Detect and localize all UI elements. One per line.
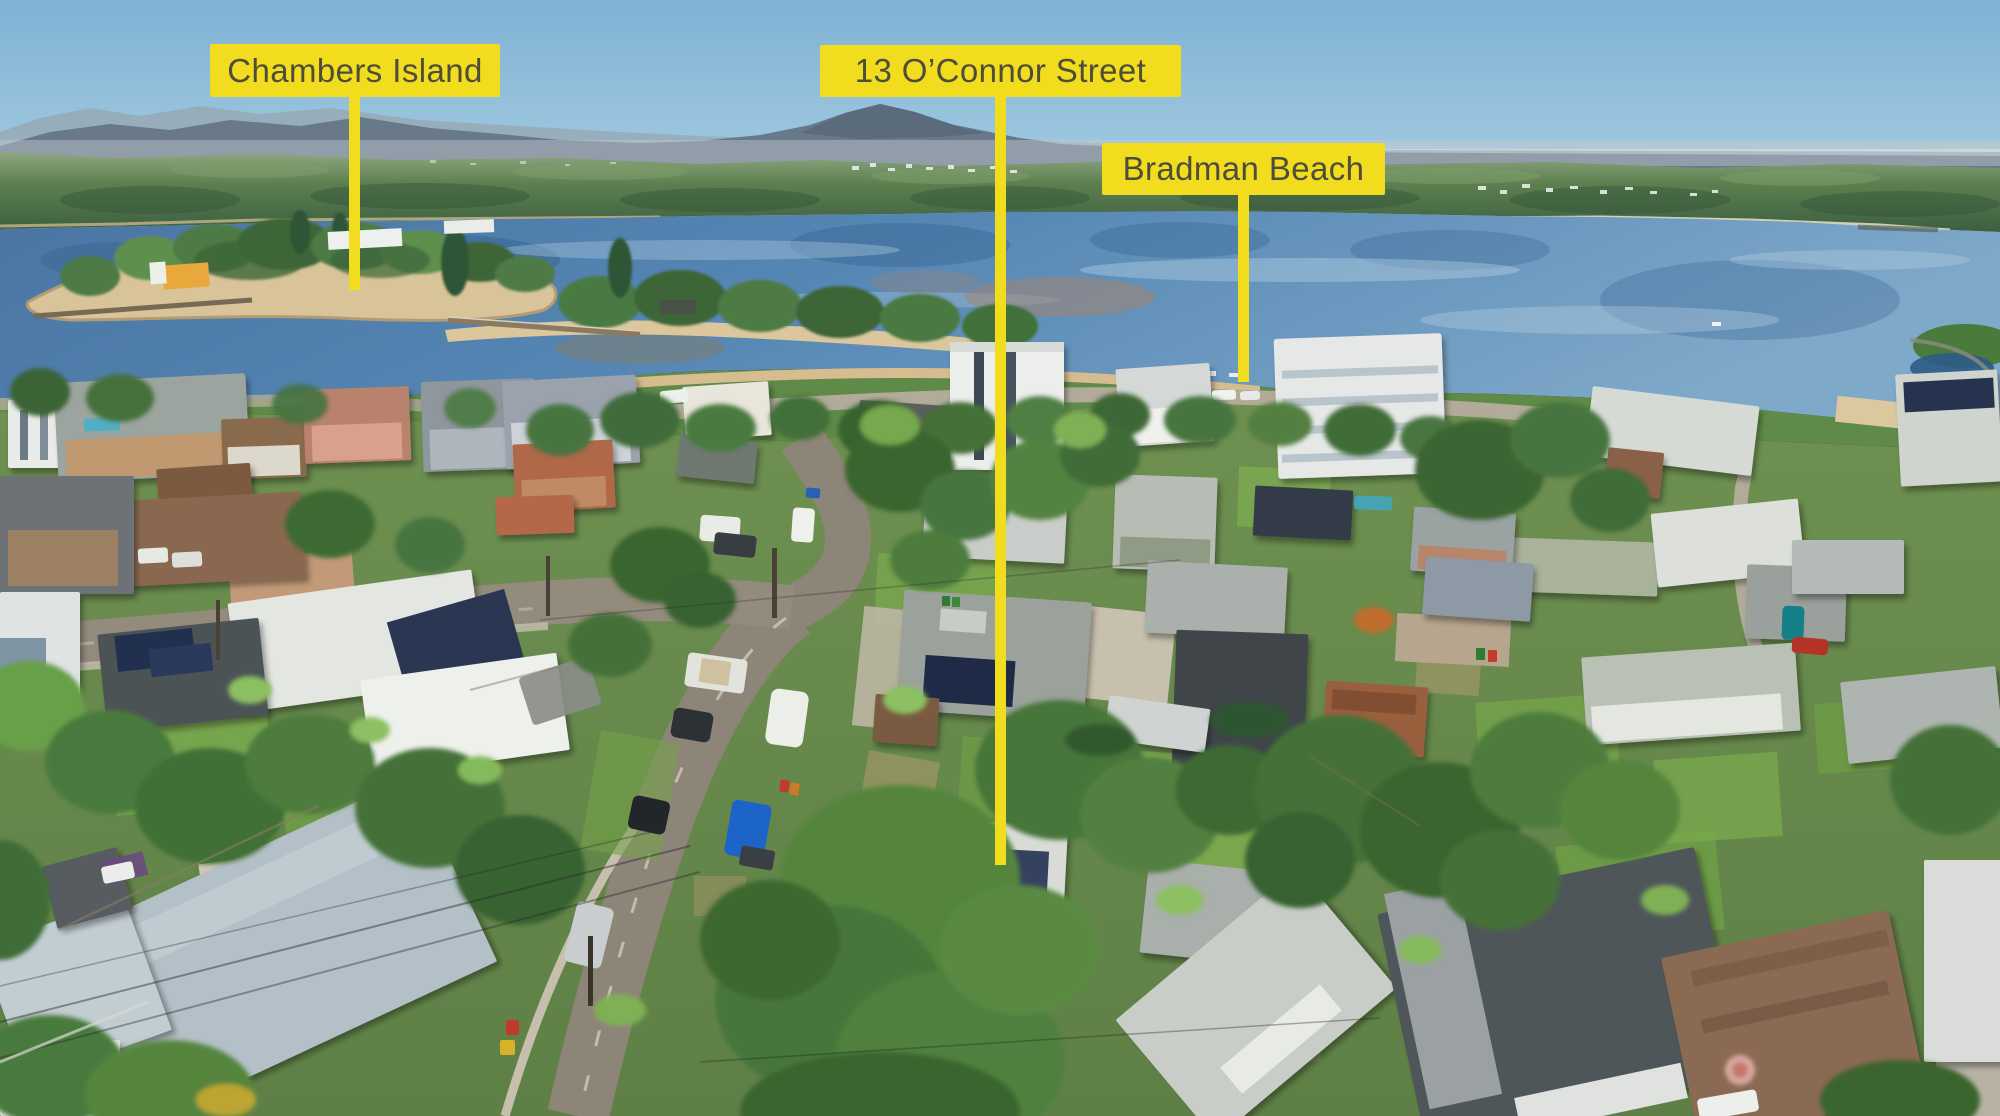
scene-tree — [272, 384, 328, 424]
scene-tree — [1510, 402, 1610, 478]
scene-structure — [172, 551, 203, 568]
scene-structure — [506, 1020, 519, 1035]
scene-structure — [698, 658, 731, 686]
scene-tree — [86, 374, 154, 422]
scene-tree — [1245, 812, 1355, 908]
scene-tree — [1324, 404, 1396, 456]
scene-tree — [395, 517, 465, 573]
scene-tree — [664, 572, 736, 628]
scene-tree — [568, 613, 652, 677]
scene-structure — [124, 491, 306, 586]
scene-tree — [1732, 1062, 1748, 1078]
scene-structure — [772, 548, 777, 618]
oconnor-street-callout-line — [995, 96, 1006, 865]
scene-structure — [1781, 606, 1804, 641]
scene-tree — [860, 405, 920, 445]
scene-tree — [350, 717, 390, 743]
scene-tree — [1354, 607, 1394, 633]
scene-structure — [588, 936, 593, 1006]
aerial-photo: Chambers Island 13 O’Connor Street Bradm… — [0, 0, 2000, 1116]
scene-structure — [1791, 636, 1828, 655]
scene-tree — [10, 368, 70, 416]
scene-tree — [444, 388, 496, 428]
scene-tree — [1398, 936, 1442, 964]
scene-tree — [1560, 760, 1680, 860]
scene-structure — [20, 410, 28, 460]
scene-tree — [526, 404, 594, 456]
scene-tree — [600, 392, 680, 448]
scene-structure — [1240, 391, 1260, 401]
scene-structure — [1924, 860, 2000, 1062]
scene-tree — [1570, 468, 1650, 532]
scene-structure — [495, 495, 574, 536]
scene-structure — [1422, 556, 1534, 621]
scene-tree — [1641, 885, 1689, 915]
scene-structure — [939, 608, 986, 633]
scene-structure — [779, 779, 790, 792]
scene-tree — [1440, 830, 1560, 930]
scene-tree — [1054, 412, 1106, 448]
scene-tree — [940, 885, 1100, 1015]
scene-structure — [546, 556, 550, 616]
scene-structure — [950, 342, 1064, 352]
scene-structure — [764, 688, 809, 749]
scene-tree — [196, 1084, 256, 1116]
scene-tree — [770, 396, 830, 440]
scene-tree — [1156, 885, 1204, 915]
scene-tree — [700, 880, 840, 1000]
scene-structure — [500, 1040, 515, 1055]
chambers-island-callout-line — [349, 96, 360, 290]
scene-structure — [216, 600, 220, 660]
scene-structure — [942, 596, 950, 606]
scene-structure — [40, 410, 48, 460]
scene-tree — [883, 686, 927, 714]
scene-tree — [1164, 396, 1236, 444]
scene-structure — [806, 488, 821, 499]
scene-structure — [8, 530, 118, 586]
scene-structure — [1354, 495, 1392, 510]
scene-structure — [952, 597, 960, 607]
scene-structure — [138, 547, 169, 564]
bradman-beach-label: Bradman Beach — [1102, 143, 1385, 195]
scene-tree — [1065, 724, 1135, 756]
scene-structure — [713, 532, 757, 558]
scene-tree — [1210, 702, 1290, 738]
scene-structure — [789, 782, 800, 795]
chambers-island-label: Chambers Island — [210, 44, 500, 97]
scene-structure — [1792, 540, 1904, 594]
scene-tree — [594, 994, 646, 1026]
scene-tree — [458, 756, 502, 784]
scene-structure — [1488, 650, 1497, 662]
scene-structure — [311, 422, 402, 461]
scene-tree — [1248, 402, 1312, 446]
scene-structure — [1253, 485, 1353, 540]
scene-structure — [1476, 648, 1485, 660]
scene-structure — [791, 507, 815, 542]
bradman-beach-callout-line — [1238, 194, 1249, 382]
scene-structure — [1144, 560, 1288, 639]
scene-tree — [228, 676, 272, 704]
scene-tree — [684, 404, 756, 452]
oconnor-street-label: 13 O’Connor Street — [820, 45, 1181, 97]
scene-tree — [285, 490, 375, 558]
scene-structure — [1903, 378, 1994, 413]
